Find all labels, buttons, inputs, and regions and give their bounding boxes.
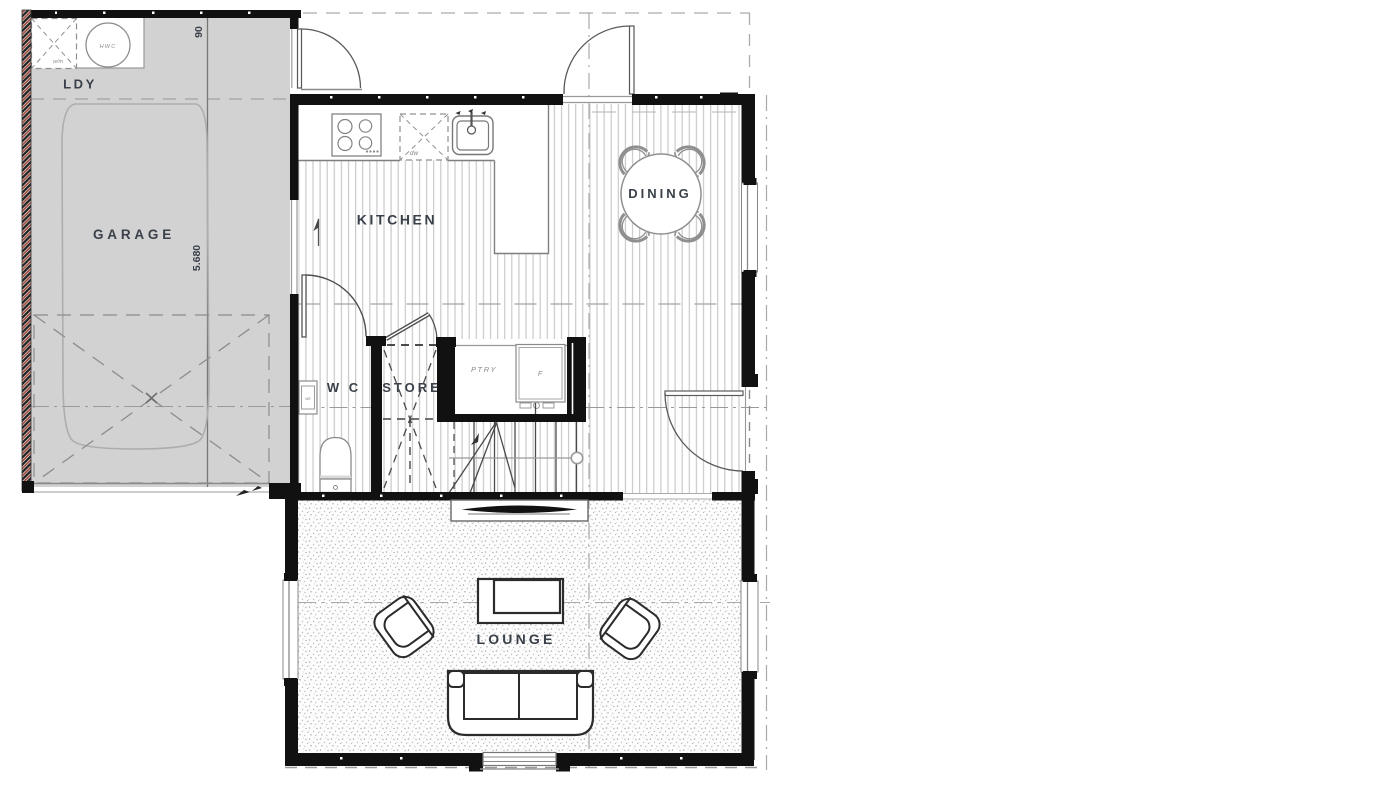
svg-text:DINING: DINING — [628, 186, 692, 201]
svg-text:w/m: w/m — [53, 59, 64, 65]
svg-text:5.680: 5.680 — [191, 245, 203, 271]
svg-text:wc: wc — [305, 396, 311, 401]
svg-text:W C: W C — [327, 380, 361, 395]
svg-text:dw: dw — [410, 150, 420, 157]
svg-text:LDY: LDY — [63, 77, 97, 92]
svg-text:F: F — [538, 371, 543, 378]
svg-text:STORE: STORE — [382, 380, 442, 395]
svg-text:90: 90 — [193, 26, 205, 38]
svg-text:LOUNGE: LOUNGE — [476, 631, 555, 647]
svg-text:KITCHEN: KITCHEN — [357, 212, 437, 228]
svg-text:GARAGE: GARAGE — [93, 227, 175, 242]
svg-text:PTRY: PTRY — [471, 365, 497, 374]
svg-text:HWC: HWC — [100, 44, 117, 50]
